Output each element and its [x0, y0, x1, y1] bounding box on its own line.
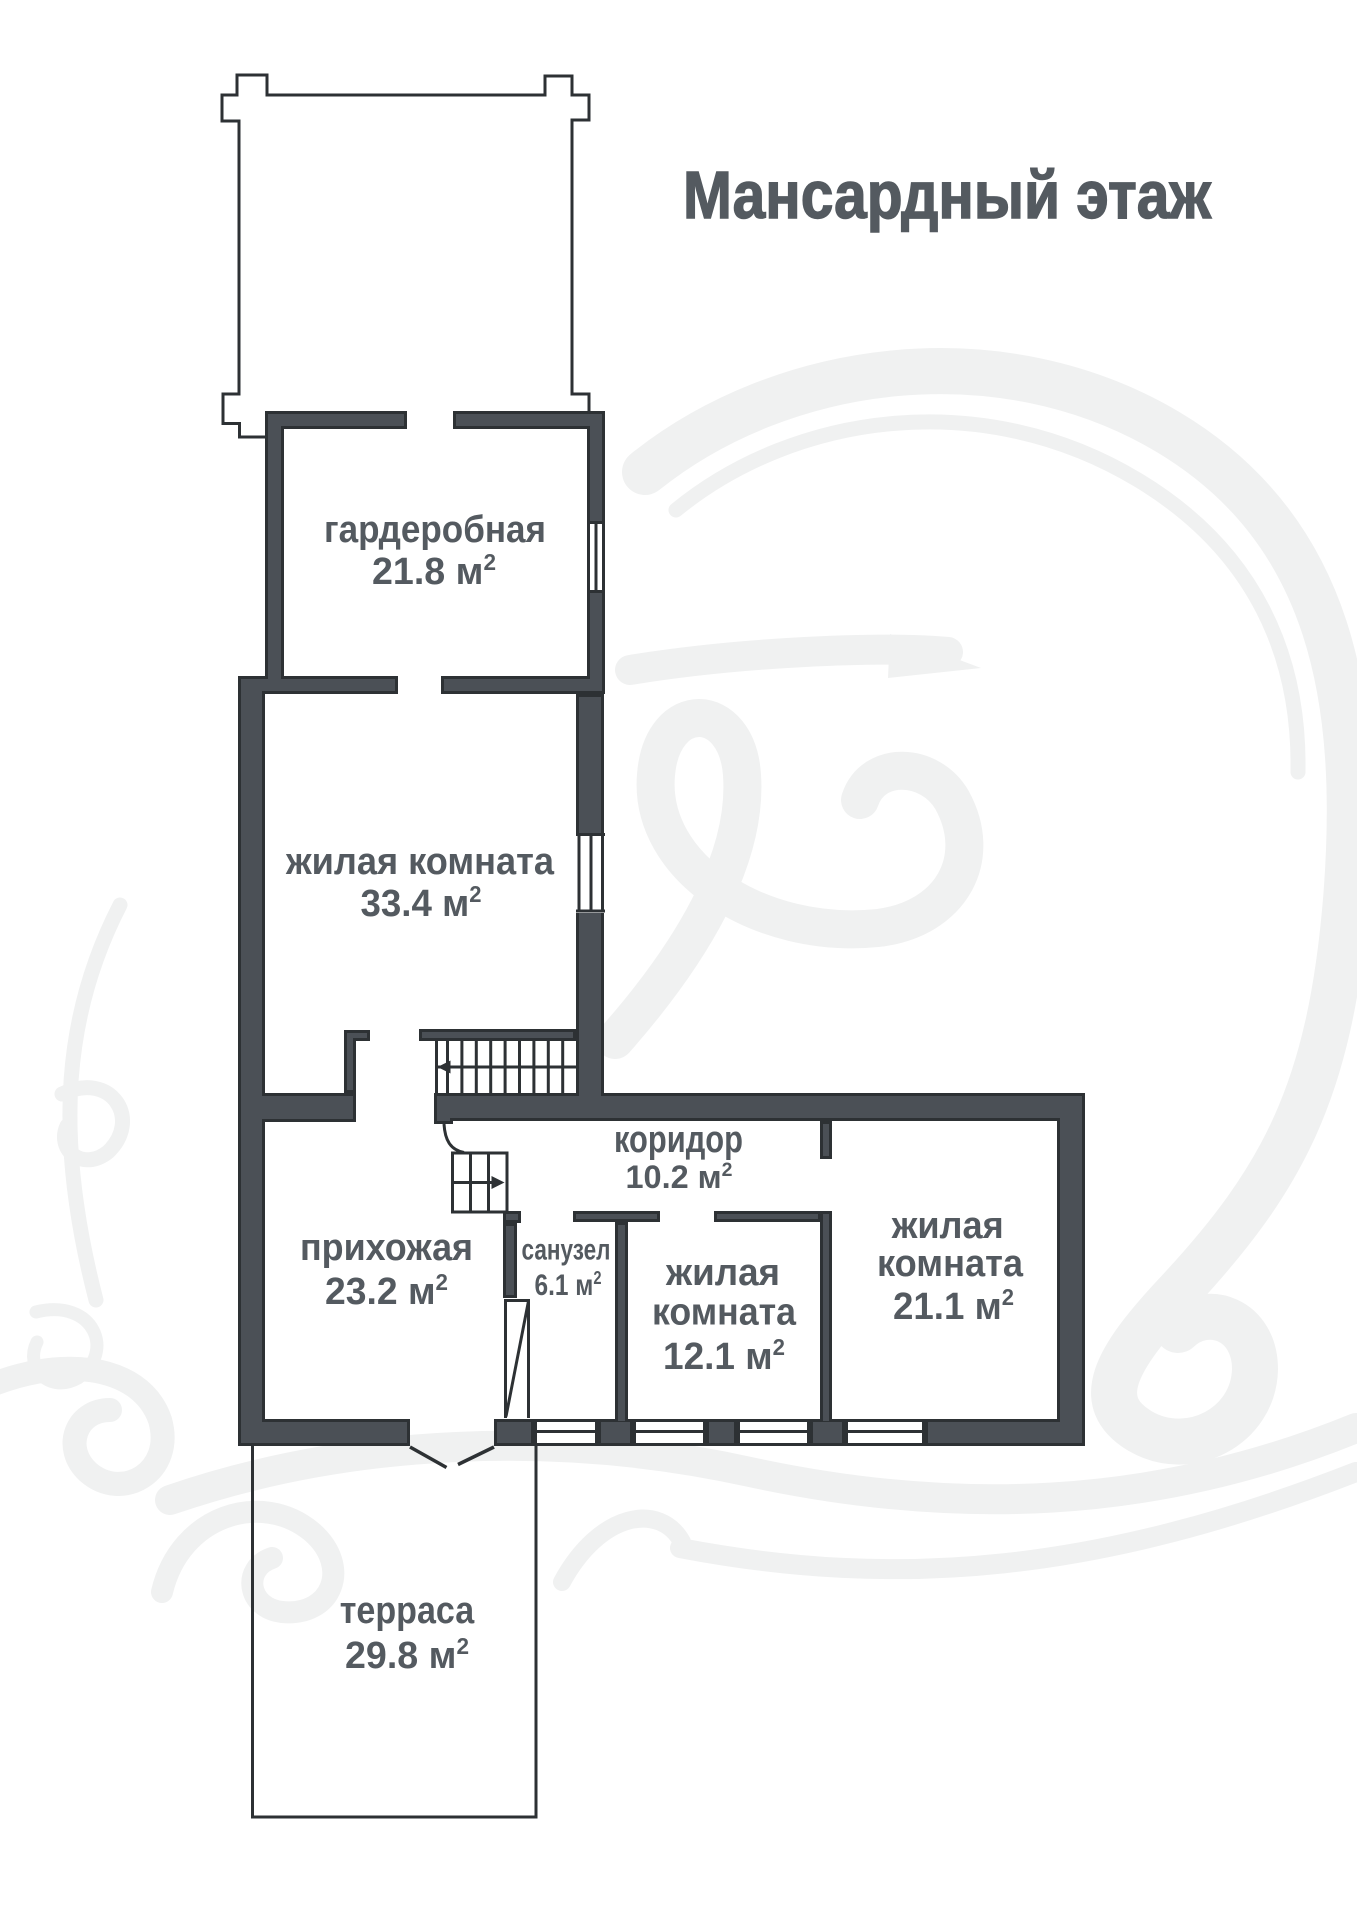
svg-text:комната: комната [652, 1292, 797, 1334]
svg-text:коридор: коридор [614, 1119, 743, 1161]
svg-text:6.1 м2: 6.1 м2 [535, 1268, 602, 1302]
svg-text:33.4 м2: 33.4 м2 [361, 881, 482, 925]
svg-text:21.1 м2: 21.1 м2 [893, 1284, 1014, 1328]
svg-text:жилая: жилая [665, 1252, 780, 1294]
svg-text:жилая: жилая [891, 1205, 1004, 1247]
svg-text:10.2 м2: 10.2 м2 [626, 1159, 733, 1195]
svg-text:прихожая: прихожая [300, 1227, 473, 1269]
svg-text:жилая комната: жилая комната [285, 841, 555, 883]
svg-text:Мансардный этаж: Мансардный этаж [683, 158, 1212, 233]
svg-text:29.8 м2: 29.8 м2 [345, 1633, 469, 1677]
svg-text:комната: комната [877, 1243, 1024, 1285]
svg-text:23.2 м2: 23.2 м2 [325, 1269, 448, 1313]
svg-text:терраса: терраса [340, 1590, 475, 1632]
svg-text:санузел: санузел [522, 1234, 611, 1267]
svg-text:гардеробная: гардеробная [324, 509, 546, 551]
svg-text:21.8 м2: 21.8 м2 [372, 549, 496, 593]
svg-text:12.1 м2: 12.1 м2 [663, 1334, 785, 1378]
